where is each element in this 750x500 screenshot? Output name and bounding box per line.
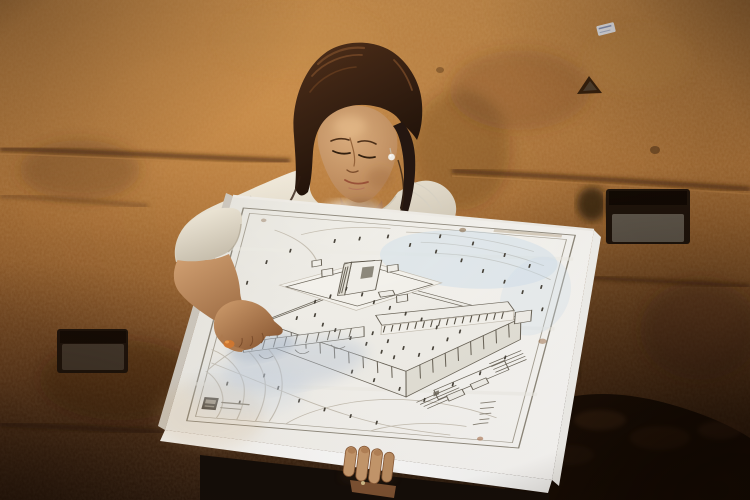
scene-canvas	[0, 0, 750, 500]
vignette	[0, 0, 750, 500]
photo-scene	[0, 0, 750, 500]
